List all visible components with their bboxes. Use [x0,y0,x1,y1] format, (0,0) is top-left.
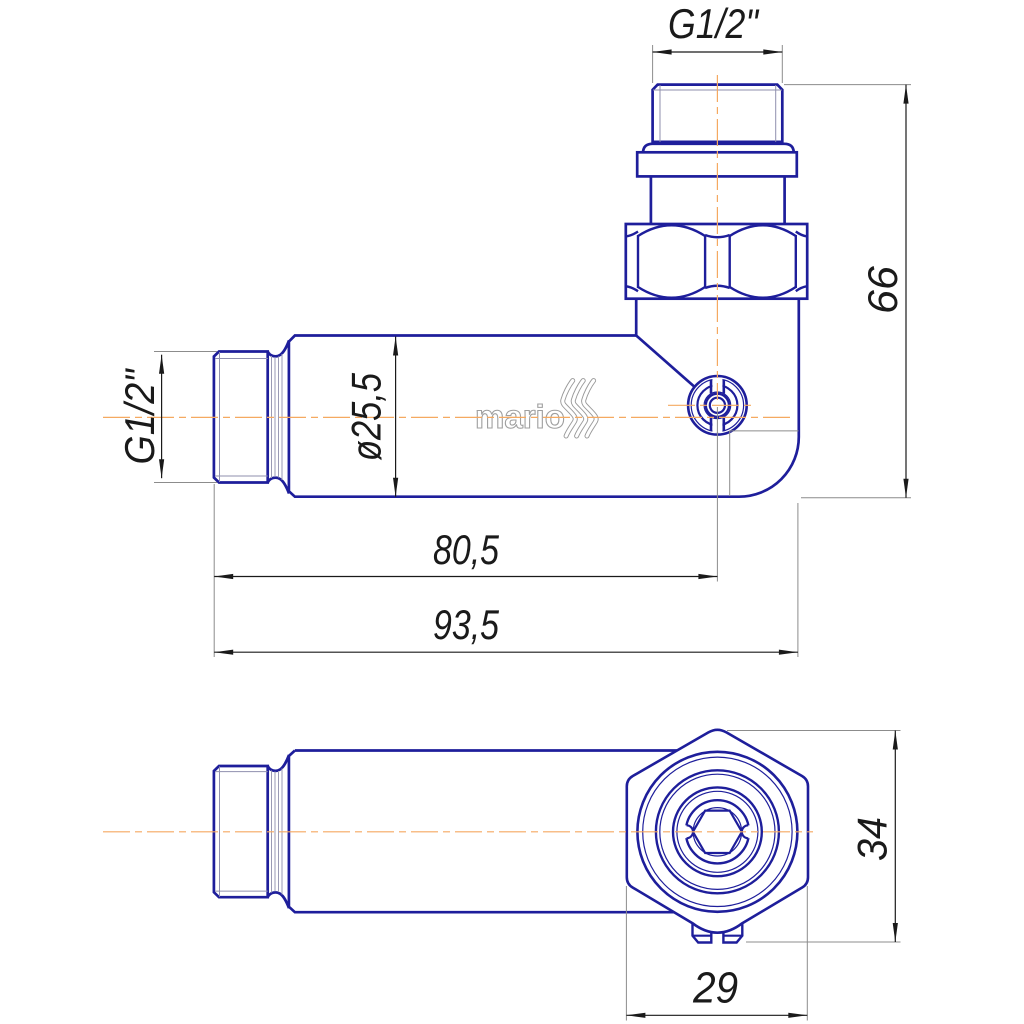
svg-text:34: 34 [849,817,896,861]
svg-text:93,5: 93,5 [433,601,500,648]
svg-text:29: 29 [692,964,738,1013]
svg-text:80,5: 80,5 [433,526,500,573]
svg-text:66: 66 [859,265,906,314]
svg-text:G1/2": G1/2" [668,0,760,47]
svg-text:G1/2": G1/2" [116,368,163,465]
svg-text:ø25,5: ø25,5 [343,372,390,461]
svg-text:mario: mario [475,398,565,435]
